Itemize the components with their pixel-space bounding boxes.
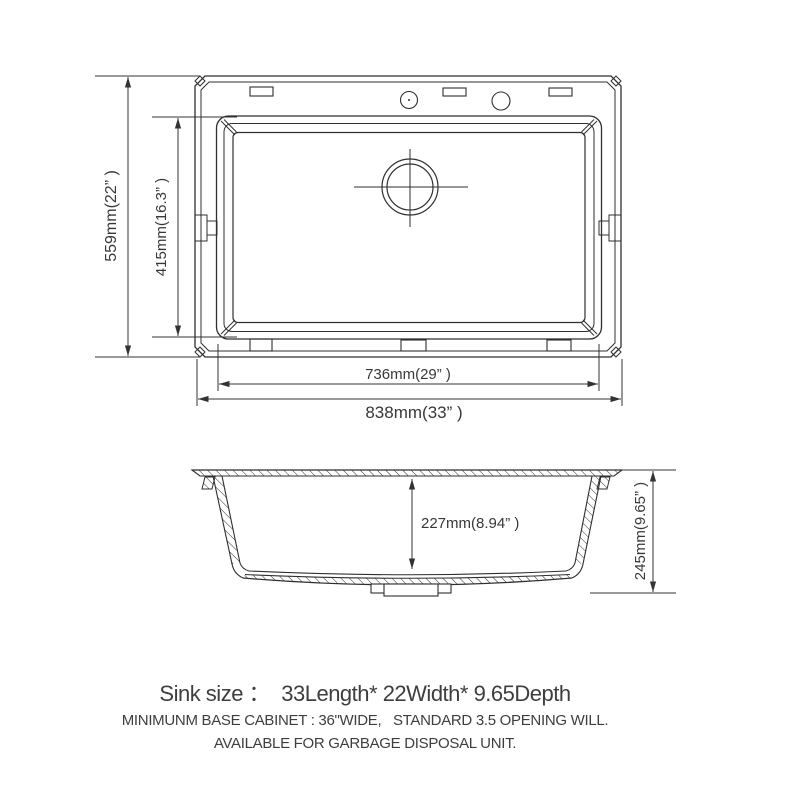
- mounting-tab: [443, 88, 466, 96]
- side-clips: [195, 215, 621, 241]
- top-view: [195, 76, 621, 357]
- faucet-hole-center-mark: [408, 99, 410, 101]
- footer-note-line-1: MINIMUNM BASE CABINET : 36"WIDE, STANDAR…: [2, 712, 728, 729]
- dim-label-bowl-inner-depth: 227mm(8.94” ): [421, 515, 519, 532]
- deck-cross-section: [192, 470, 622, 476]
- bottom-cross-section: [243, 571, 572, 585]
- dim-label-overall-width: 838mm(33” ): [365, 403, 462, 422]
- mounting-tab: [549, 88, 572, 96]
- left-wall: [213, 476, 249, 578]
- dim-label-overall-depth: 559mm(22” ): [103, 170, 120, 262]
- sink-dimension-diagram: 559mm(22” ) 415mm(16.3” ) 736mm(29” ) 83…: [0, 0, 800, 800]
- bowl-opening: [217, 116, 602, 339]
- sink-rim-outline: [195, 76, 621, 357]
- right-wall: [566, 476, 601, 578]
- bottom-tabs: [250, 339, 571, 351]
- dim-label-bowl-depth: 415mm(16.3” ): [153, 178, 170, 276]
- underside-clips: [202, 477, 610, 489]
- dim-label-bowl-width: 736mm(29” ): [365, 366, 451, 383]
- footer-size-line: Sink size ： 33Length* 22Width* 9.65Depth: [2, 676, 728, 708]
- rim-corner-details: [195, 76, 621, 357]
- side-view: [192, 470, 622, 596]
- faucet-deck: [250, 87, 572, 110]
- mounting-tab: [250, 87, 273, 96]
- drain: [354, 149, 468, 227]
- footer-note-line-2: AVAILABLE FOR GARBAGE DISPOSAL UNIT.: [2, 735, 728, 752]
- dim-label-overall-height: 245mm(9.65” ): [632, 482, 649, 580]
- top-view-dimensions: 559mm(22” ) 415mm(16.3” ) 736mm(29” ) 83…: [95, 76, 622, 422]
- drain-fitting: [371, 584, 451, 596]
- bowl-corner-seams: [221, 120, 597, 336]
- faucet-hole: [492, 92, 510, 110]
